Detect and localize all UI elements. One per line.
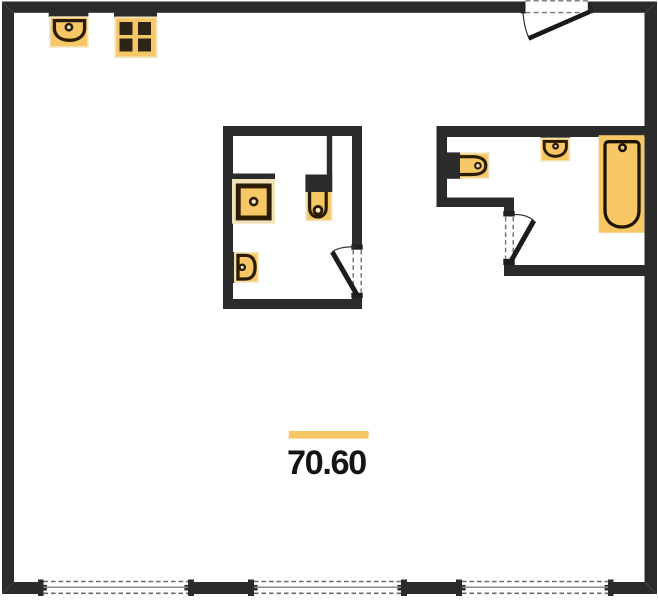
svg-text:70.60: 70.60: [287, 444, 366, 482]
